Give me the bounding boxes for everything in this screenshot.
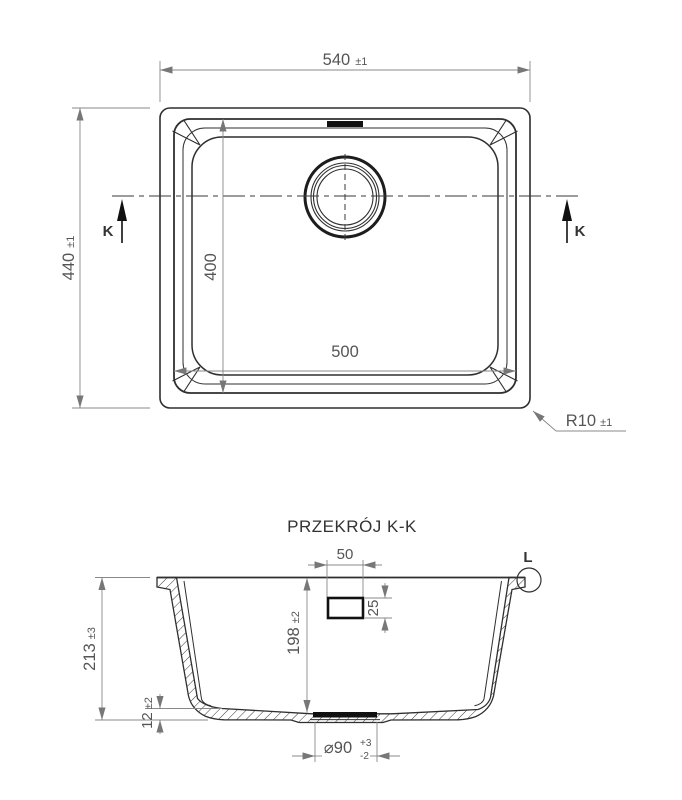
dim-540-label: 540±1 [323, 51, 368, 69]
top-view: K K 540±1 440±1 400 500 [60, 51, 626, 431]
overflow-slot [327, 121, 363, 127]
dim-440-label: 440±1 [60, 236, 78, 281]
right-wall-inner-line [475, 581, 502, 706]
dim-198-label: 198±2 [285, 611, 303, 655]
dim-400-label: 400 [202, 253, 220, 281]
section-title: PRZEKRÓJ K-K [287, 517, 417, 536]
dim-50-label: 50 [337, 546, 354, 563]
dim-drain-tol-minus: -2 [360, 751, 369, 762]
dim-12-label: 12±2 [139, 697, 156, 729]
section-marker-left: K [103, 223, 114, 240]
dim-500-label: 500 [331, 343, 359, 361]
overflow-hole-section [328, 598, 363, 618]
section-marker-right: K [575, 223, 586, 240]
drain-hole-section [313, 712, 377, 718]
radius-label: R10±1 [566, 412, 612, 430]
dim-50 [308, 560, 382, 597]
bowl-bottom-edge [192, 137, 498, 375]
dim-drain-label: ⌀90 [324, 739, 352, 757]
detail-label: L [523, 549, 532, 566]
section-arrow-right: K [562, 199, 586, 243]
dim-25-label: 25 [365, 600, 382, 617]
dim-213-label: 213±3 [81, 627, 99, 671]
drawing-canvas: K K 540±1 440±1 400 500 [0, 0, 682, 800]
section-arrow-left: K [103, 199, 127, 243]
dim-440 [72, 108, 150, 408]
section-view: PRZEKRÓJ K-K L 50 [81, 517, 541, 762]
technical-drawing-sink: K K 540±1 440±1 400 500 [0, 0, 682, 800]
dim-drain-tol-plus: +3 [360, 738, 372, 749]
